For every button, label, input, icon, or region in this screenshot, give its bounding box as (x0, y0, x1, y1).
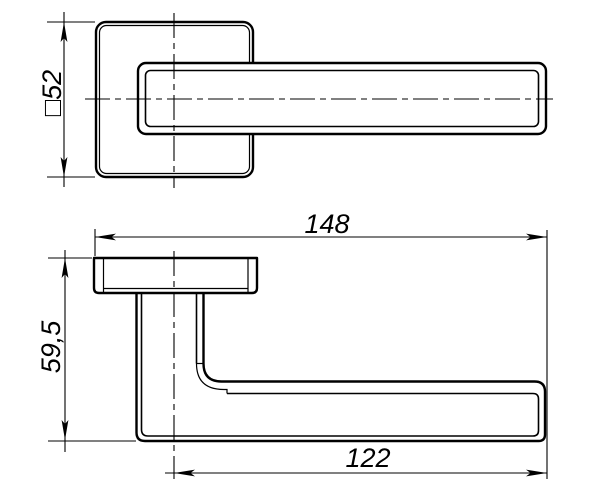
dimension-label-148: 148 (304, 209, 349, 239)
dimension-overall-height: 59,5 (36, 250, 136, 452)
rosette-side-outline (94, 258, 257, 293)
handle-side-edge-line (142, 293, 539, 436)
technical-drawing: □52 148 122 (0, 0, 600, 500)
dimension-label-59-5: 59,5 (36, 320, 66, 374)
top-view (85, 13, 553, 188)
side-view (94, 251, 545, 479)
handle-side-outline (137, 293, 546, 441)
dimension-grip-length: 122 (165, 443, 547, 476)
dimension-overall-length: 148 (95, 209, 547, 479)
dimension-label-122: 122 (345, 443, 390, 473)
drawing-svg: □52 148 122 (0, 0, 600, 500)
dimension-label-square52: □52 (37, 70, 67, 116)
